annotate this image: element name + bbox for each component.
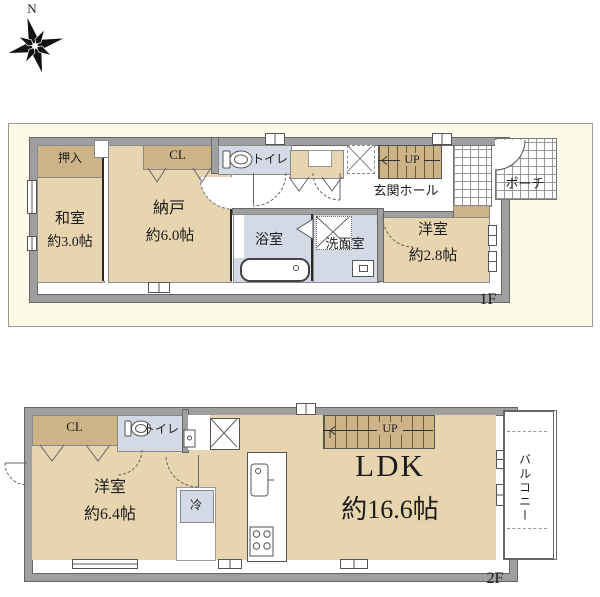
entrance-hatch-box (347, 145, 375, 174)
window-2f-top (296, 403, 316, 415)
porch-label: ポーチ (498, 177, 552, 191)
hall-2f (188, 415, 210, 450)
fridge-label: 冷 (180, 499, 212, 512)
window-1f-bottom (148, 282, 170, 293)
balcony-label: バルコニー (518, 448, 531, 528)
toilet-2f-label: トイレ (138, 423, 184, 436)
wall-nando-right (230, 177, 232, 281)
toilet-1f-label: トイレ (249, 153, 291, 166)
closet-1f-label: CL (143, 148, 212, 162)
balcony-dash-bottom (507, 528, 547, 529)
door-arc-exterior-2f (5, 463, 27, 485)
hatch-box-2f (210, 418, 240, 450)
window-2f-bottom-b (218, 559, 242, 569)
washitsu-label: 和室 (37, 212, 103, 228)
youshitsu-2f-size: 約6.4帖 (50, 507, 170, 524)
floor2-label: 2F (477, 571, 513, 588)
hall-closet-notch (308, 150, 332, 167)
balcony-dash-top (507, 431, 547, 432)
ldk-size: 約16.6帖 (305, 496, 475, 523)
bath-label: 浴室 (246, 234, 292, 249)
youshitsu-1f-label: 洋室 (400, 223, 466, 239)
nando-size: 約6.0帖 (132, 229, 208, 245)
floor-plan-image: N 押入 和室 約3.0帖 納戸 約6.0帖 CL トイレ 浴室 洗面室 玄関ホ… (0, 0, 600, 597)
oshiire-label: 押入 (40, 152, 100, 165)
window-1f-top-a (265, 133, 285, 145)
room-washitsu (37, 177, 105, 283)
entrance-hall-label: 玄関ホール (365, 184, 447, 198)
washroom-label: 洗面室 (313, 237, 377, 251)
vanity-bowl (359, 265, 368, 272)
bathtub (240, 258, 310, 282)
genkan-tile (453, 145, 492, 207)
floor1-label: 1F (470, 292, 506, 309)
kitchen-counter (247, 452, 287, 562)
window-1f-right-b (488, 251, 497, 272)
nando-label: 納戸 (136, 201, 202, 218)
youshitsu-1f-size: 約2.8帖 (395, 249, 471, 265)
window-1f-right-a (488, 225, 497, 246)
stairs-2f-label: UP (377, 422, 403, 435)
ldk-label: LDK (320, 450, 460, 483)
compass-icon (0, 8, 72, 81)
washitsu-size: 約3.0帖 (33, 236, 107, 251)
window-1f-top-b (432, 133, 452, 145)
youshitsu-2f-label: 洋室 (55, 480, 165, 497)
bath-door-strip (234, 215, 244, 258)
stairs-1f-label: UP (400, 153, 424, 166)
window-2f-bottom-c (340, 559, 368, 569)
window-2f-bottom-a (72, 559, 138, 569)
compass-north-label: N (24, 2, 40, 16)
wall-washroom-youshitsu (378, 209, 383, 281)
window-1f-left-a (27, 180, 37, 214)
closet-2f-label: CL (32, 420, 117, 434)
